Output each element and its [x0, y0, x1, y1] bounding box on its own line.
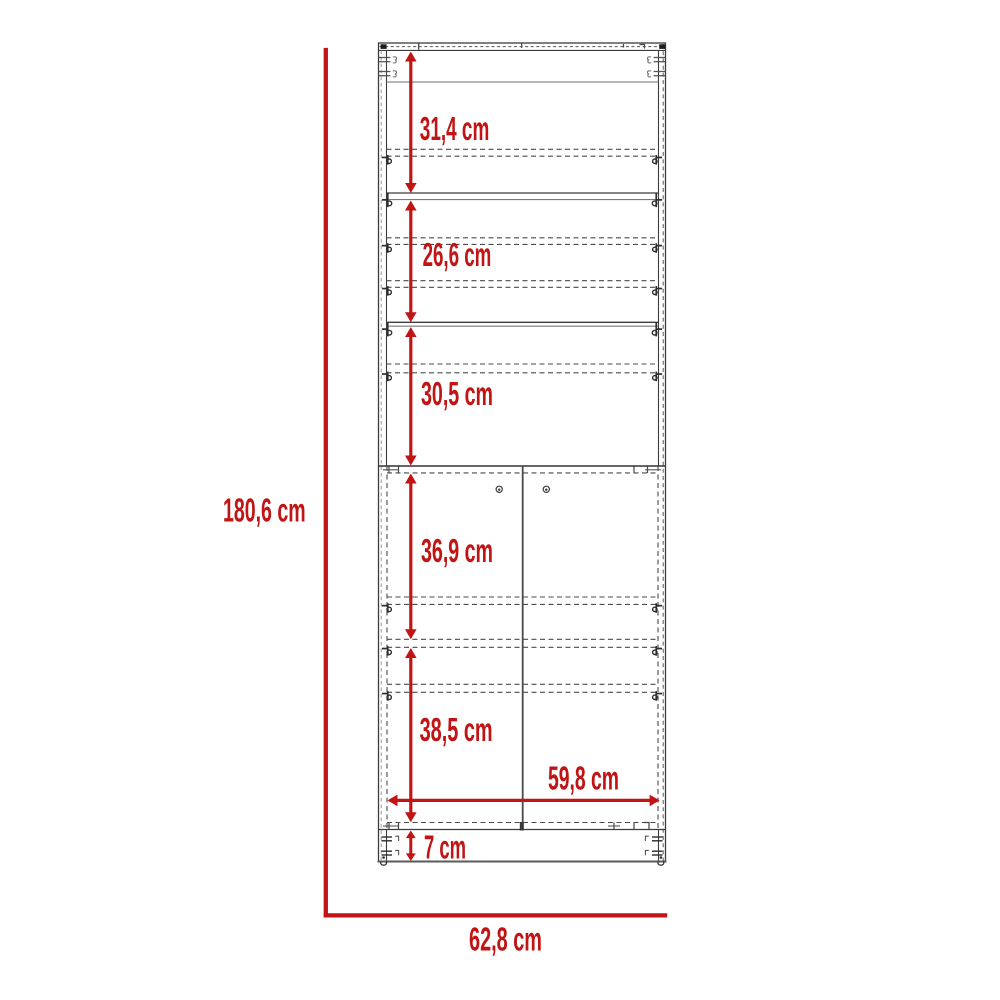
svg-text:7 cm: 7 cm [424, 829, 466, 866]
svg-text:62,8 cm: 62,8 cm [469, 921, 542, 958]
svg-text:31,4 cm: 31,4 cm [420, 110, 490, 147]
svg-text:180,6 cm: 180,6 cm [223, 492, 306, 529]
svg-text:30,5 cm: 30,5 cm [421, 375, 493, 412]
svg-text:38,5 cm: 38,5 cm [420, 711, 493, 748]
svg-text:26,6 cm: 26,6 cm [423, 236, 492, 273]
svg-text:59,8 cm: 59,8 cm [548, 759, 619, 796]
svg-text:36,9 cm: 36,9 cm [421, 532, 493, 569]
